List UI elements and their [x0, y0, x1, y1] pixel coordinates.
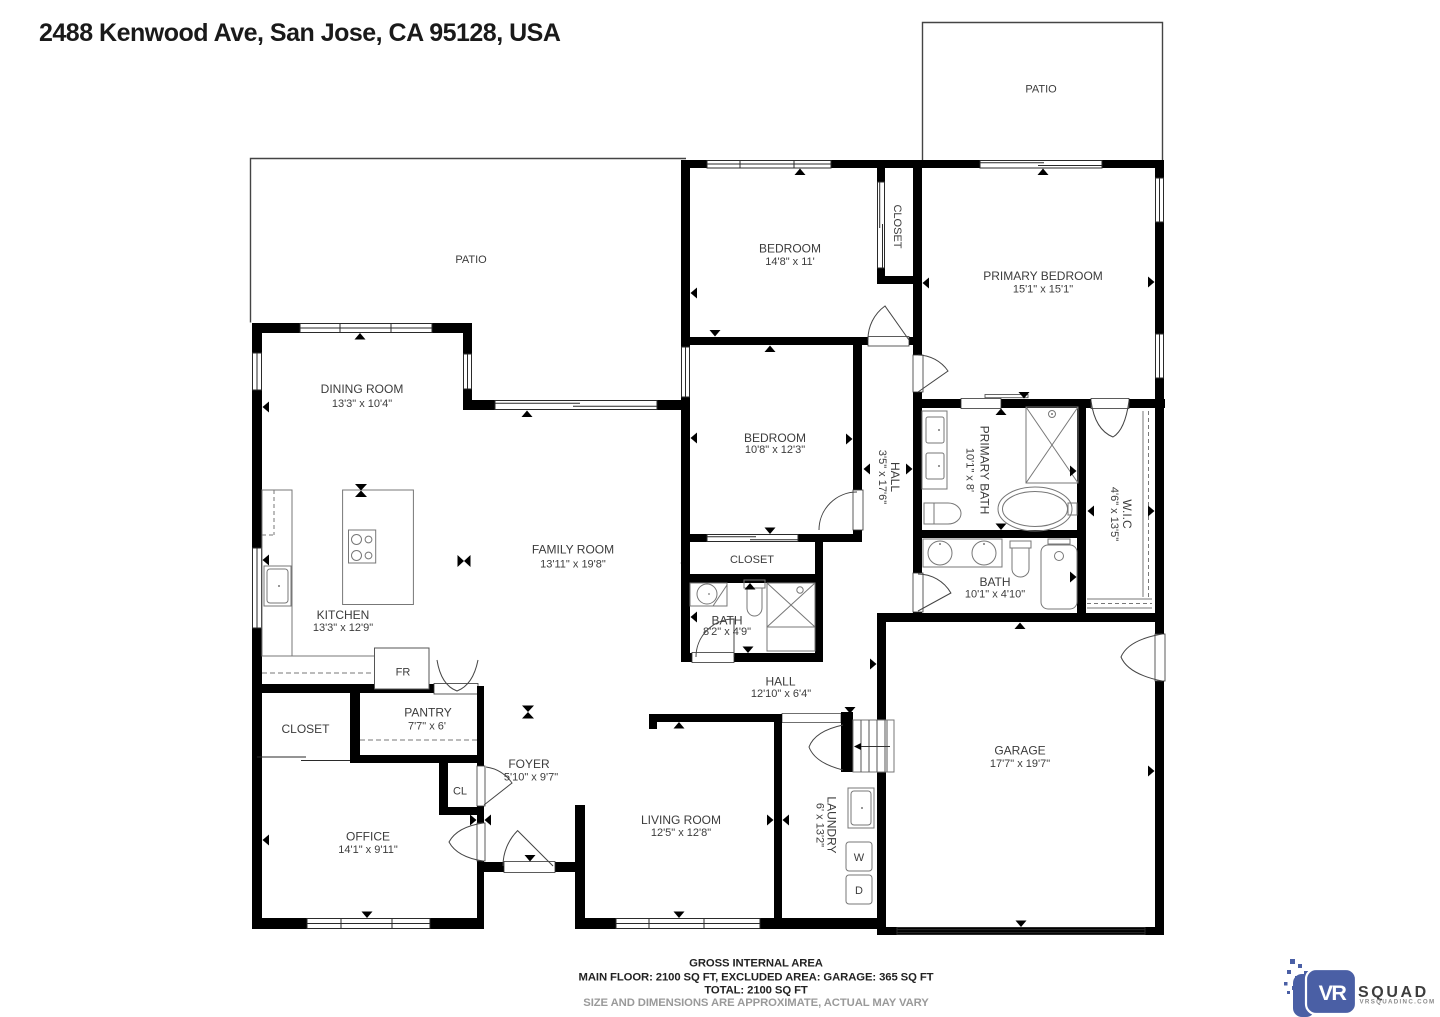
svg-text:GARAGE: GARAGE [994, 744, 1045, 758]
svg-text:CL: CL [453, 786, 467, 798]
svg-text:MAIN FLOOR: 2100 SQ FT, EXCLUD: MAIN FLOOR: 2100 SQ FT, EXCLUDED AREA: G… [579, 972, 934, 984]
svg-text:BEDROOM: BEDROOM [744, 431, 806, 445]
svg-text:4'6" x 13'5": 4'6" x 13'5" [1108, 487, 1120, 541]
svg-text:10'8" x 12'3": 10'8" x 12'3" [745, 444, 805, 456]
svg-text:PATIO: PATIO [1025, 84, 1057, 96]
svg-text:HALL: HALL [765, 675, 795, 689]
svg-text:13'11" x 19'8": 13'11" x 19'8" [540, 559, 606, 571]
svg-text:13'3" x 10'4": 13'3" x 10'4" [332, 398, 392, 410]
svg-text:PRIMARY BATH: PRIMARY BATH [978, 426, 992, 515]
svg-text:KITCHEN: KITCHEN [317, 608, 370, 622]
svg-text:2488 Kenwood Ave, San Jose, CA: 2488 Kenwood Ave, San Jose, CA 95128, US… [39, 19, 561, 47]
svg-text:6' x 13'2": 6' x 13'2" [814, 803, 826, 847]
svg-text:BATH: BATH [979, 575, 1010, 589]
svg-text:13'3" x 12'9": 13'3" x 12'9" [313, 622, 373, 634]
svg-text:CLOSET: CLOSET [281, 722, 330, 736]
svg-text:14'8" x 11': 14'8" x 11' [765, 256, 815, 268]
svg-text:12'5" x 12'8": 12'5" x 12'8" [651, 827, 711, 839]
svg-text:TOTAL: 2100 SQ FT: TOTAL: 2100 SQ FT [704, 985, 808, 997]
svg-text:FAMILY ROOM: FAMILY ROOM [532, 543, 614, 557]
svg-text:FOYER: FOYER [508, 757, 550, 771]
svg-text:LIVING ROOM: LIVING ROOM [641, 813, 721, 827]
svg-text:7'7" x 6': 7'7" x 6' [408, 721, 446, 733]
svg-text:W: W [854, 852, 865, 864]
svg-text:VRSQUADINC.COM: VRSQUADINC.COM [1360, 999, 1436, 1006]
svg-text:PANTRY: PANTRY [404, 706, 452, 720]
svg-text:DINING ROOM: DINING ROOM [321, 382, 404, 396]
svg-text:LAUNDRY: LAUNDRY [825, 796, 839, 853]
svg-text:PRIMARY BEDROOM: PRIMARY BEDROOM [983, 269, 1103, 283]
svg-text:17'7" x 19'7": 17'7" x 19'7" [990, 758, 1050, 770]
svg-text:12'10" x 6'4": 12'10" x 6'4" [751, 688, 811, 700]
svg-text:W.I.C: W.I.C [1120, 499, 1134, 529]
svg-text:VR: VR [1319, 981, 1348, 1005]
svg-text:SIZE AND DIMENSIONS ARE APPROX: SIZE AND DIMENSIONS ARE APPROXIMATE, ACT… [583, 997, 929, 1009]
svg-text:GROSS INTERNAL AREA: GROSS INTERNAL AREA [689, 958, 823, 970]
svg-text:15'1" x 15'1": 15'1" x 15'1" [1013, 284, 1073, 296]
svg-text:8'2" x 4'9": 8'2" x 4'9" [703, 626, 751, 638]
svg-text:HALL: HALL [888, 462, 902, 492]
svg-text:3'5" x 17'6": 3'5" x 17'6" [876, 450, 888, 504]
svg-text:CLOSET: CLOSET [730, 554, 774, 566]
svg-text:FR: FR [396, 667, 411, 679]
svg-text:OFFICE: OFFICE [346, 830, 390, 844]
svg-text:CLOSET: CLOSET [891, 204, 903, 248]
svg-text:BEDROOM: BEDROOM [759, 242, 821, 256]
svg-text:10'1" x 4'10": 10'1" x 4'10" [965, 589, 1025, 601]
svg-text:14'1" x 9'11": 14'1" x 9'11" [338, 844, 398, 856]
svg-text:10'1" x 8': 10'1" x 8' [964, 448, 976, 492]
svg-text:5'10" x 9'7": 5'10" x 9'7" [504, 772, 558, 784]
svg-text:PATIO: PATIO [455, 254, 487, 266]
svg-text:D: D [855, 885, 863, 897]
